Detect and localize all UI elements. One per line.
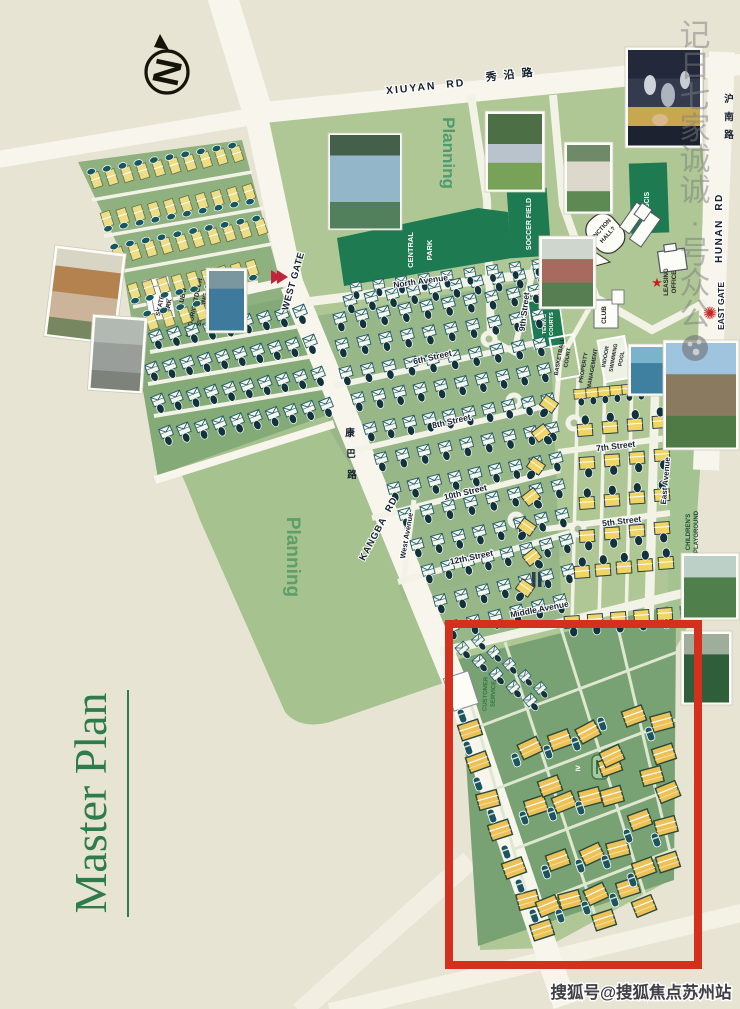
svg-text:诚: 诚: [680, 173, 711, 208]
svg-text:PARK: PARK: [425, 239, 434, 260]
svg-text:家: 家: [680, 111, 711, 146]
svg-text:CUSTOMER: CUSTOMER: [482, 676, 489, 711]
svg-text:路: 路: [724, 129, 734, 141]
svg-text:PLAYGROUND: PLAYGROUND: [694, 510, 700, 553]
svg-text:CHILDREN'S: CHILDREN'S: [686, 514, 692, 550]
svg-text:南: 南: [724, 111, 734, 123]
svg-text:★: ★: [651, 275, 663, 290]
svg-text:巴: 巴: [346, 449, 356, 460]
svg-text:OFFICE: OFFICE: [671, 271, 678, 294]
svg-text:众: 众: [680, 266, 711, 301]
svg-text:搜狐号@搜狐焦点苏州站: 搜狐号@搜狐焦点苏州站: [550, 982, 732, 1002]
svg-text:COURTS: COURTS: [549, 312, 555, 336]
svg-text:SERVICE: SERVICE: [491, 681, 498, 707]
svg-text:SOCCER FIELD: SOCCER FIELD: [526, 198, 533, 250]
svg-text:·: ·: [690, 204, 700, 239]
svg-text:康: 康: [344, 427, 355, 439]
svg-text:Master Plan: Master Plan: [65, 692, 116, 913]
svg-text:Planning: Planning: [439, 117, 458, 189]
svg-text:号: 号: [680, 235, 711, 270]
svg-text:公: 公: [680, 297, 711, 332]
svg-text:日: 日: [680, 49, 711, 84]
svg-text:LEASING: LEASING: [663, 268, 670, 296]
svg-text:EAST GATE: EAST GATE: [716, 282, 726, 330]
svg-text:记: 记: [680, 18, 711, 53]
svg-text:≥: ≥: [576, 763, 581, 773]
svg-text:路: 路: [347, 469, 357, 481]
svg-text:七: 七: [680, 80, 711, 115]
svg-text:诚: 诚: [680, 142, 711, 177]
svg-text:HUNAN RD: HUNAN RD: [714, 193, 725, 263]
svg-text:沪: 沪: [724, 93, 734, 105]
svg-text:CLUB: CLUB: [601, 306, 608, 324]
svg-text:Planning: Planning: [282, 517, 303, 597]
svg-text:CENTRAL: CENTRAL: [406, 232, 415, 268]
